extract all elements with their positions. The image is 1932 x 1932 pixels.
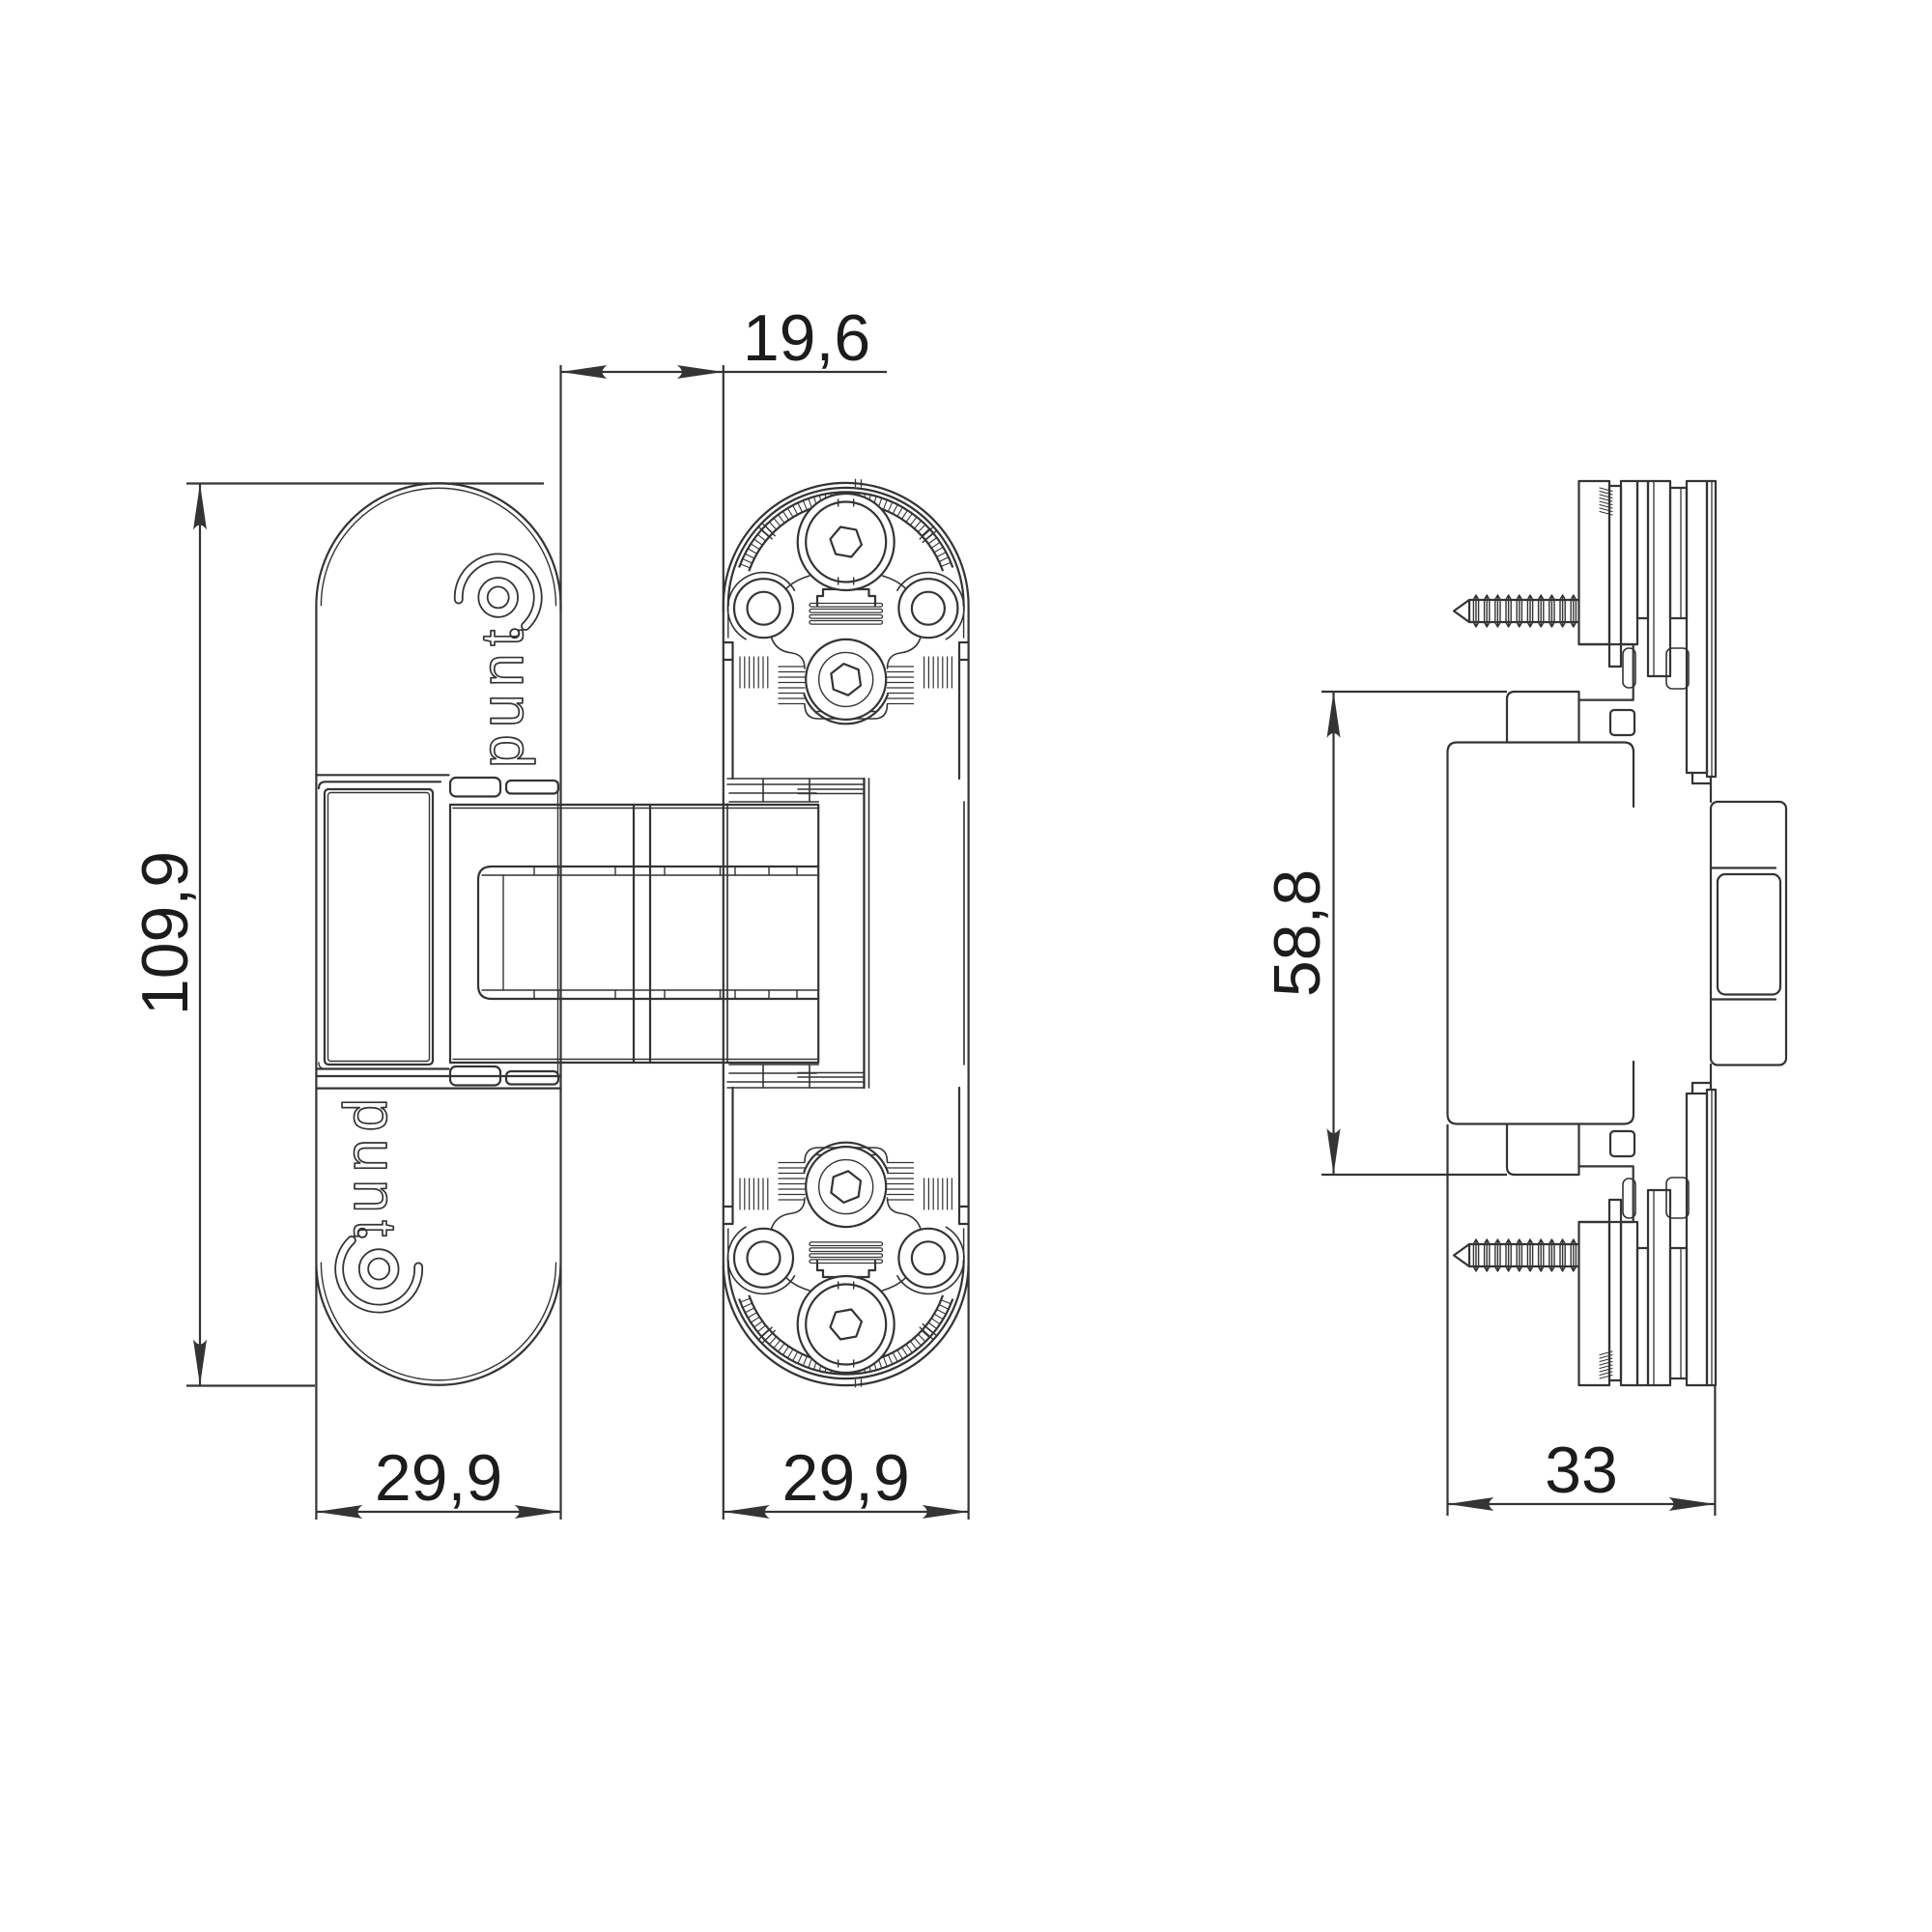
svg-text:109,9: 109,9 bbox=[128, 851, 202, 1015]
svg-text:33: 33 bbox=[1545, 1434, 1618, 1507]
svg-text:58,8: 58,8 bbox=[1261, 869, 1334, 997]
svg-text:29,9: 29,9 bbox=[782, 1441, 910, 1515]
svg-text:29,9: 29,9 bbox=[375, 1441, 502, 1515]
svg-text:punt: punt bbox=[469, 622, 536, 768]
svg-text:19,6: 19,6 bbox=[743, 301, 870, 375]
